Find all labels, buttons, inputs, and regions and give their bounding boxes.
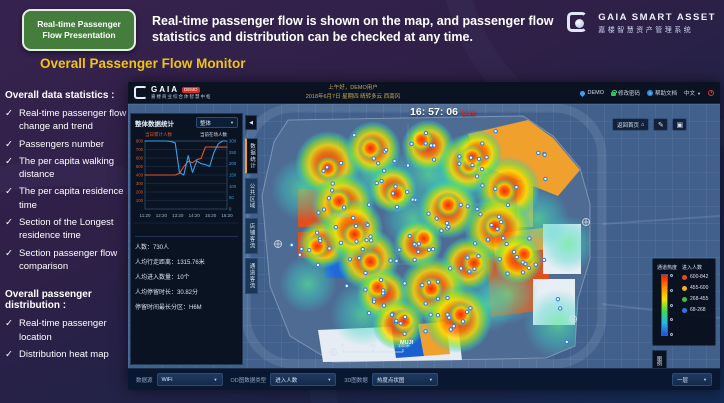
check-icon: ✓ xyxy=(5,216,19,243)
checklist-item-label: The per capita walking distance xyxy=(19,155,132,182)
scope-select[interactable]: 整体 ▼ xyxy=(196,117,238,128)
live-clock: 16: 57: 06Live xyxy=(358,106,528,118)
chevron-left-icon: ◀ xyxy=(249,120,253,126)
data-source-select[interactable]: WiFi ▼ xyxy=(157,373,223,386)
help-icon: ? xyxy=(647,90,653,96)
svg-text:200: 200 xyxy=(136,190,144,195)
chevron-down-icon: ▼ xyxy=(429,377,433,382)
monitor-icon: ▣ xyxy=(677,121,684,129)
check-icon: ✓ xyxy=(5,138,19,151)
edit-button[interactable]: ✎ xyxy=(653,118,668,131)
stat-entries: 人均进入数量：10个 xyxy=(135,271,238,286)
svg-text:当日累计人数: 当日累计人数 xyxy=(145,131,172,138)
side-tab-strip: 数据统计公共区域店铺客流通道客流 xyxy=(245,138,258,294)
svg-text:13:20: 13:20 xyxy=(172,213,184,218)
slide-headline: Real-time passenger flow is shown on the… xyxy=(152,13,564,46)
checklist-item: ✓Distribution heat map xyxy=(5,348,132,361)
floor-select[interactable]: 一层 ▼ xyxy=(672,373,712,386)
checklist-item-label: Real-time passenger location xyxy=(19,317,132,344)
legend-dot xyxy=(682,275,687,280)
od-data-type-select[interactable]: 进入人数 ▼ xyxy=(270,373,336,386)
home-icon: ⌂ xyxy=(641,122,644,128)
chevron-down-icon: ▼ xyxy=(327,377,331,382)
svg-text:100: 100 xyxy=(136,198,144,203)
od-data-type-field: OD图数据类型 进入人数 ▼ xyxy=(231,373,337,386)
greeting-line: 上午好，DEMO用户 xyxy=(278,84,428,93)
legend-dot xyxy=(682,286,687,291)
checklist-item-label: Section of the Longest residence time xyxy=(19,216,132,243)
svg-text:14:20: 14:20 xyxy=(189,213,201,218)
legend-range-row: 68-268 xyxy=(682,307,708,313)
brand-name: GAIA SMART ASSET xyxy=(598,12,716,23)
svg-text:15:20: 15:20 xyxy=(205,213,217,218)
home-button[interactable]: 返回首页 ⌂ xyxy=(612,118,649,131)
svg-text:当前在场人数: 当前在场人数 xyxy=(200,131,227,138)
feature-checklist: Overall data statistics :✓Real-time pass… xyxy=(5,90,132,365)
checklist-item-label: Section passenger flow comparison xyxy=(19,247,132,274)
lock-icon xyxy=(611,92,616,96)
power-icon xyxy=(708,90,714,96)
app-logo-text: GAIA xyxy=(151,85,179,94)
checklist-item: ✓Real-time passenger location xyxy=(5,317,132,344)
svg-text:500: 500 xyxy=(136,164,144,169)
legend-range-label: 600-842 xyxy=(690,274,708,280)
svg-text:700: 700 xyxy=(136,147,144,152)
nav-help-doc[interactable]: ? 帮助文档 xyxy=(647,89,677,97)
svg-text:300: 300 xyxy=(229,139,237,144)
heat-gradient-bar xyxy=(661,274,668,336)
legend-range-label: 455-600 xyxy=(690,285,708,291)
svg-text:800: 800 xyxy=(136,139,144,144)
map-3d-data-select[interactable]: 热度点状图 ▼ xyxy=(372,373,438,386)
svg-text:300: 300 xyxy=(136,181,144,186)
stat-residence-time: 人均停留时长：30.82分 xyxy=(135,286,238,301)
slide-topic-badge: Real-time Passenger Flow Presentation xyxy=(22,9,136,51)
svg-text:50: 50 xyxy=(229,195,234,200)
check-icon: ✓ xyxy=(5,185,19,212)
stats-panel-title: 整体数据统计 xyxy=(135,118,174,128)
side-tab-2[interactable]: 店铺客流 xyxy=(245,218,258,254)
data-source-field: 数据源 WiFi ▼ xyxy=(136,373,223,386)
legend-range-label: 68-268 xyxy=(690,307,706,313)
location-pin-icon xyxy=(579,89,586,96)
svg-text:12:20: 12:20 xyxy=(156,213,168,218)
svg-text:600: 600 xyxy=(136,156,144,161)
overall-stats-panel: 整体数据统计 整体 ▼ 当日累计人数当前在场人数8007006005004003… xyxy=(130,113,243,365)
checklist-item: ✓Passengers number xyxy=(5,138,132,151)
map-toolbar: 返回首页 ⌂ ✎ ▣ xyxy=(612,118,687,131)
stat-walking-distance: 人均行走距离：1315.76米 xyxy=(135,256,238,271)
checklist-item: ✓Section of the Longest residence time xyxy=(5,216,132,243)
checklist-item-label: Real-time passenger flow change and tren… xyxy=(19,107,132,134)
date-line: 2018年6月7日 星期四 晴转多云 西南风 xyxy=(278,93,428,102)
check-icon: ✓ xyxy=(5,348,19,361)
checklist-item-label: Passengers number xyxy=(19,138,104,151)
checklist-item-label: The per capita residence time xyxy=(19,185,132,212)
legend-range-label: 268-455 xyxy=(690,296,708,302)
stat-passenger-count: 人数：730人 xyxy=(135,241,238,256)
check-icon: ✓ xyxy=(5,317,19,344)
legend-range-row: 600-842 xyxy=(682,274,708,280)
checklist-item: ✓Real-time passenger flow change and tre… xyxy=(5,107,132,134)
legend-heat-title: 通道热度 xyxy=(657,264,677,271)
legend-dot xyxy=(682,297,687,302)
side-tab-1[interactable]: 公共区域 xyxy=(245,178,258,214)
checklist-section-title: Overall data statistics : xyxy=(5,90,132,101)
svg-text:16:20: 16:20 xyxy=(221,213,233,218)
dashboard-logo: GAIA DEMO 嘉楼商业综合体智慧中枢 xyxy=(128,85,212,100)
svg-text:400: 400 xyxy=(136,173,144,178)
svg-text:100: 100 xyxy=(229,184,237,189)
legend-enter-title: 进入人数 xyxy=(682,264,708,271)
side-tab-0[interactable]: 数据统计 xyxy=(245,138,258,174)
passenger-trend-chart: 当日累计人数当前在场人数8007006005004003002001003002… xyxy=(131,129,240,229)
checklist-section-title: Overall passenger distribution : xyxy=(5,289,132,311)
svg-text:0: 0 xyxy=(229,207,232,212)
svg-text:100米: 100米 xyxy=(398,342,411,349)
nav-logout[interactable] xyxy=(708,90,714,96)
nav-change-password[interactable]: 修改密码 xyxy=(611,89,640,97)
legend-dot xyxy=(682,308,687,313)
checklist-item: ✓Section passenger flow comparison xyxy=(5,247,132,274)
chevron-down-icon: ▼ xyxy=(230,120,234,125)
map-filter-bar: 数据源 WiFi ▼ OD图数据类型 进入人数 ▼ 3D图数据 热度点状图 ▼ xyxy=(128,368,720,390)
app-logo-badge: DEMO xyxy=(182,87,200,93)
checklist-item-label: Distribution heat map xyxy=(19,348,109,361)
header-nav: DEMO 修改密码 ? 帮助文档 中文 ▼ xyxy=(580,82,714,104)
dashboard-screenshot: GAIA DEMO 嘉楼商业综合体智慧中枢 上午好，DEMO用户 2018年6月… xyxy=(128,82,720,390)
heat-legend-panel: 通道热度 进入人数 600-842455-600268-45568-268 xyxy=(652,258,716,346)
live-indicator: Live xyxy=(462,110,476,117)
app-logo-subtitle: 嘉楼商业综合体智慧中枢 xyxy=(151,94,212,100)
chevron-down-icon: ▼ xyxy=(703,377,707,382)
side-tab-3[interactable]: 通道客流 xyxy=(245,258,258,294)
map-zone-label-left: Amore xyxy=(333,213,349,219)
stats-list: 人数：730人 人均行走距离：1315.76米 人均进入数量：10个 人均停留时… xyxy=(135,236,238,316)
presentation-slide: Real-time Passenger Flow Presentation Re… xyxy=(0,0,724,403)
check-icon: ✓ xyxy=(5,247,19,274)
fullscreen-button[interactable]: ▣ xyxy=(672,118,687,131)
nav-location[interactable]: DEMO xyxy=(580,90,604,96)
nav-language-select[interactable]: 中文 ▼ xyxy=(684,89,701,97)
gaia-logo-icon xyxy=(566,10,592,36)
svg-text:250: 250 xyxy=(229,150,237,155)
svg-text:150: 150 xyxy=(229,173,237,178)
gaia-app-logo-icon xyxy=(134,86,147,99)
checklist-item: ✓The per capita walking distance xyxy=(5,155,132,182)
panel-collapse-button[interactable]: ◀ xyxy=(245,115,257,130)
heat-bar-ticks xyxy=(670,274,673,336)
legend-range-row: 268-455 xyxy=(682,296,708,302)
stat-longest-section: 停留时间最长分区：H6M xyxy=(135,301,238,316)
map-3d-data-field: 3D图数据 热度点状图 ▼ xyxy=(344,373,438,386)
section-title: Overall Passenger Flow Monitor xyxy=(40,56,246,71)
svg-text:50: 50 xyxy=(370,343,376,348)
legend-range-row: 455-600 xyxy=(682,285,708,291)
dashboard-header: GAIA DEMO 嘉楼商业综合体智慧中枢 上午好，DEMO用户 2018年6月… xyxy=(128,82,720,104)
brand-logo: GAIA SMART ASSET 嘉楼智慧资产管理系统 xyxy=(566,10,716,36)
checklist-item: ✓The per capita residence time xyxy=(5,185,132,212)
svg-text:11:20: 11:20 xyxy=(140,213,151,218)
brand-subtitle: 嘉楼智慧资产管理系统 xyxy=(598,25,716,35)
chevron-down-icon: ▼ xyxy=(214,377,218,382)
check-icon: ✓ xyxy=(5,155,19,182)
svg-text:200: 200 xyxy=(229,161,237,166)
check-icon: ✓ xyxy=(5,107,19,134)
user-greeting: 上午好，DEMO用户 2018年6月7日 星期四 晴转多云 西南风 xyxy=(278,84,428,102)
chevron-down-icon: ▼ xyxy=(697,91,701,96)
pencil-icon: ✎ xyxy=(658,121,664,129)
